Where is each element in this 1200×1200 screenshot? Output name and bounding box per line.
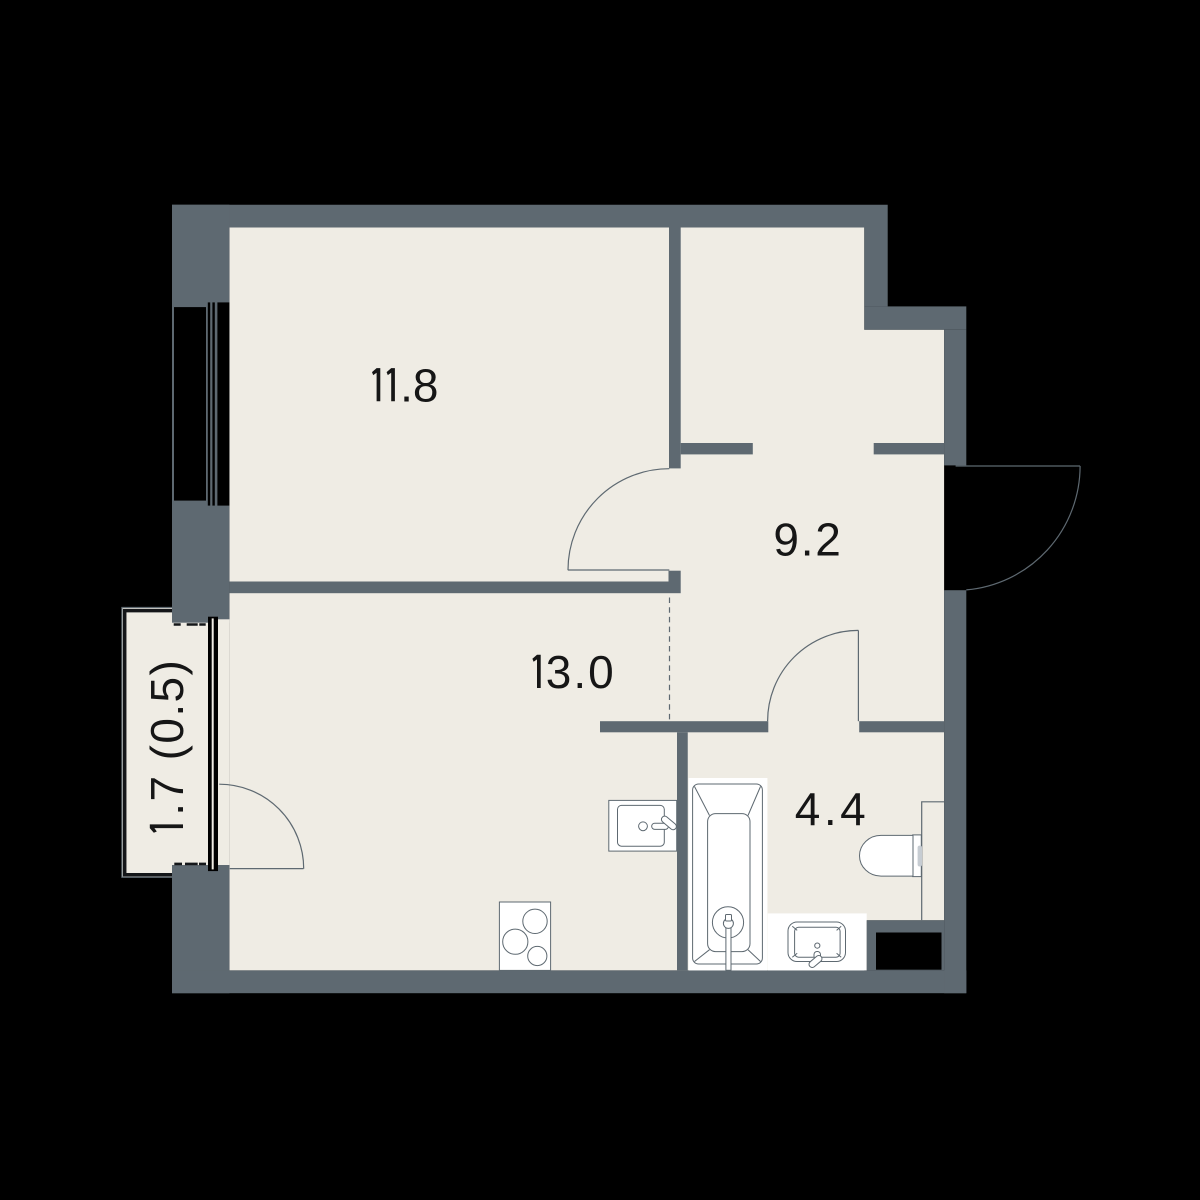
svg-text:3.0: 3.0 (546, 646, 616, 698)
svg-text:.8: .8 (400, 359, 438, 411)
svg-text:.7 (0.5): .7 (0.5) (141, 659, 193, 816)
svg-text:9.2: 9.2 (773, 514, 842, 566)
svg-text:4.4: 4.4 (795, 783, 869, 835)
